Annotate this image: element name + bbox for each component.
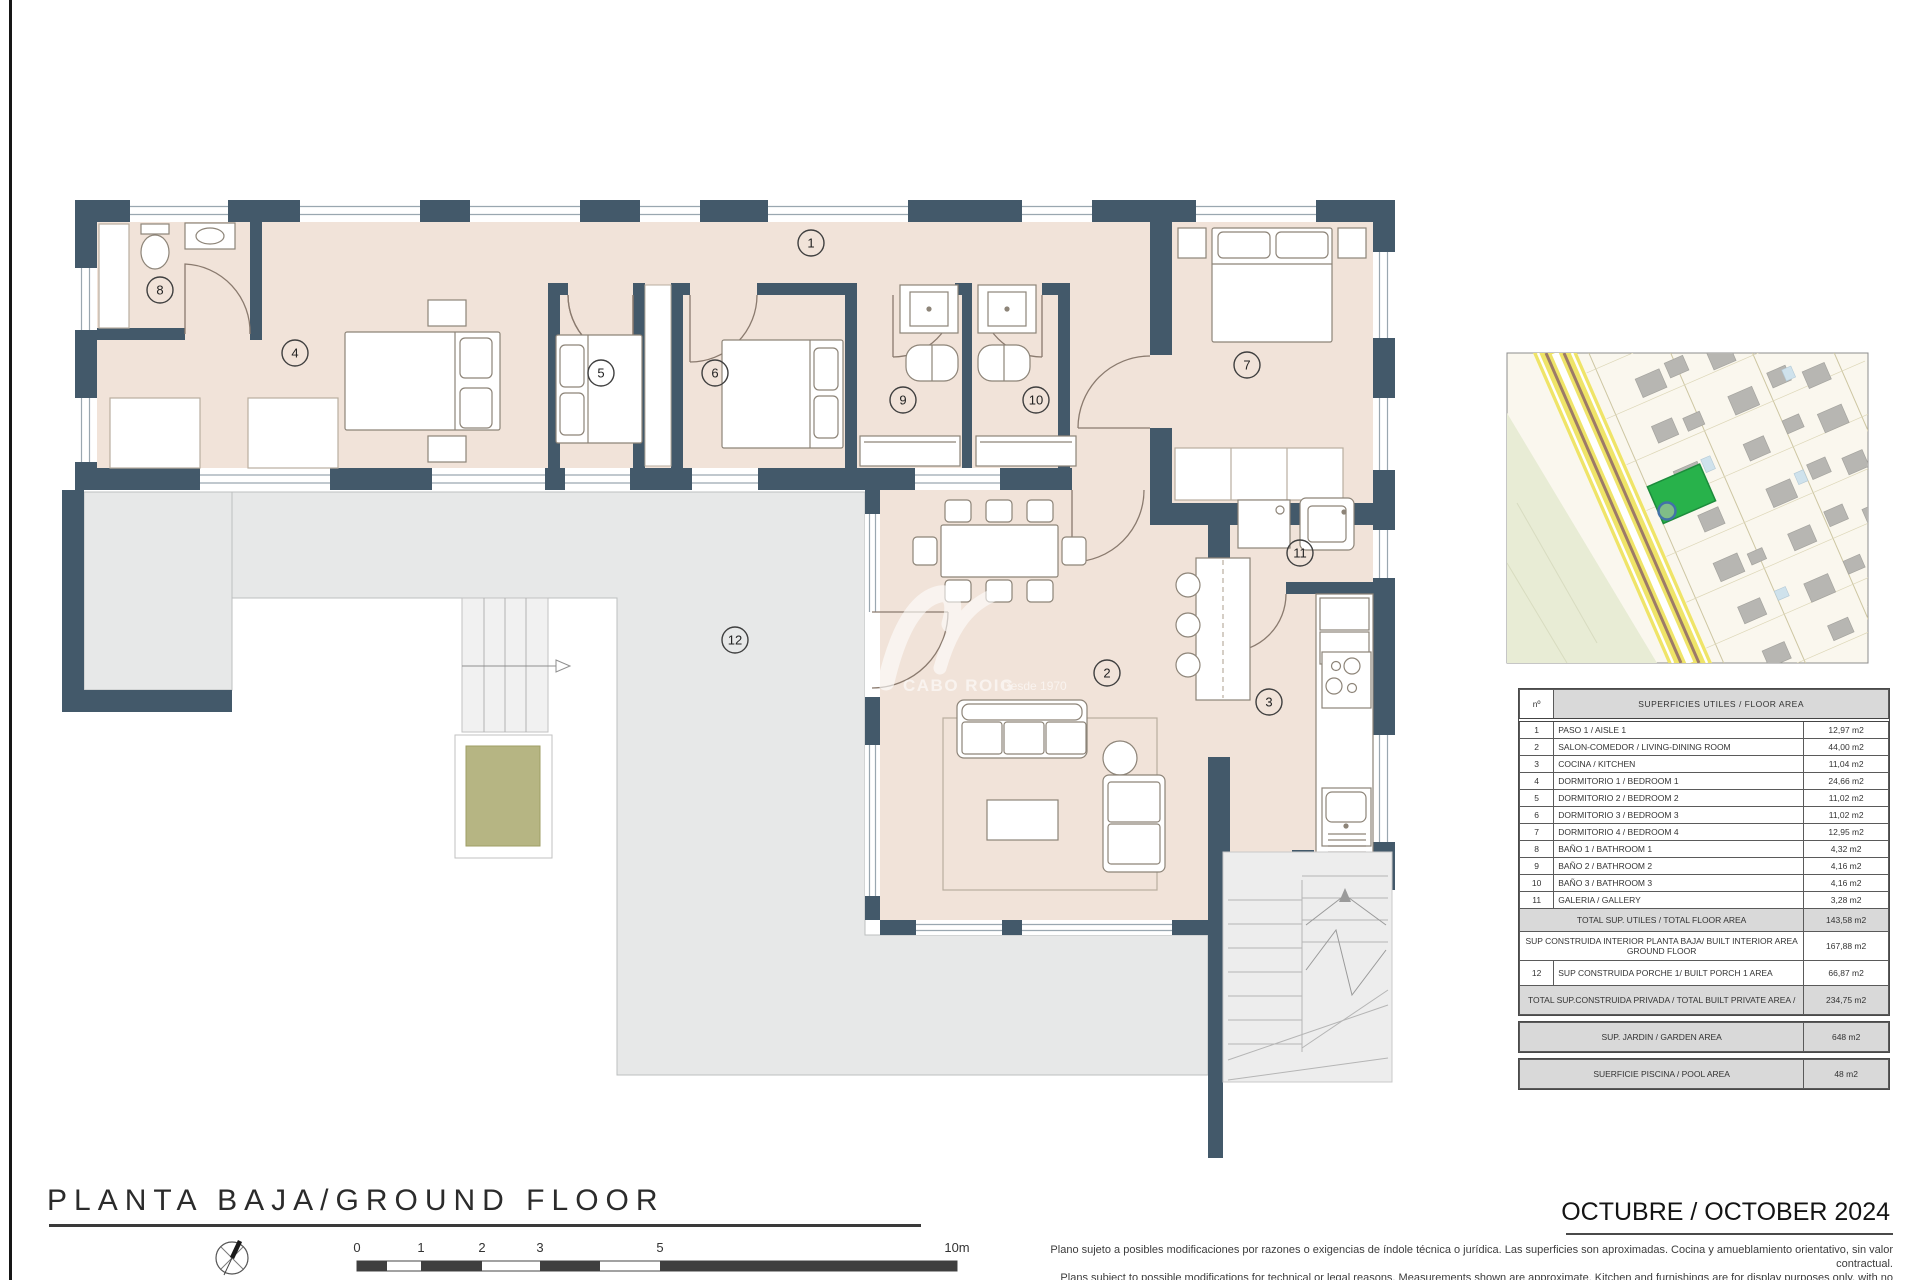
- closet-rooms-5-6: [645, 285, 671, 466]
- watermark-brand: CABO ROIG: [903, 676, 1015, 695]
- pool-area-block: SUERFICIE PISCINA / POOL AREA48 m2: [1518, 1058, 1890, 1090]
- garden-stairs: [462, 598, 570, 732]
- svg-text:1: 1: [807, 236, 814, 251]
- svg-text:3: 3: [1265, 695, 1272, 710]
- date-rule: [1566, 1233, 1893, 1235]
- pool-area-row: SUERFICIE PISCINA / POOL AREA48 m2: [1520, 1060, 1889, 1089]
- svg-text:11: 11: [1293, 546, 1307, 561]
- compass-icon: [216, 1241, 248, 1275]
- table-row: 1PASO 1 / AISLE 112,97 m2: [1520, 720, 1889, 739]
- watermark-tagline: Desde 1970: [1002, 679, 1067, 693]
- page-title: PLANTA BAJA/GROUND FLOOR: [47, 1184, 665, 1218]
- svg-text:2: 2: [1103, 666, 1110, 681]
- table-row: 3COCINA / KITCHEN11,04 m2: [1520, 756, 1889, 773]
- scale-labels: 0 1 2 3 5 10m: [353, 1240, 969, 1255]
- svg-text:0: 0: [353, 1240, 360, 1255]
- planter: [455, 735, 552, 858]
- disclaimer-line-es: Plano sujeto a posibles modificaciones p…: [1033, 1243, 1893, 1271]
- porch-area-row: 12SUP CONSTRUIDA PORCHE 1/ BUILT PORCH 1…: [1520, 961, 1889, 986]
- svg-text:9: 9: [899, 393, 906, 408]
- svg-text:6: 6: [711, 366, 718, 381]
- scale-bar: 0 1 2 3 5 10m: [353, 1240, 969, 1271]
- svg-text:12: 12: [728, 633, 742, 648]
- areas-header-title: SUPERFICIES UTILES / FLOOR AREA: [1554, 690, 1889, 721]
- table-row: 9BAÑO 2 / BATHROOM 24,16 m2: [1520, 858, 1889, 875]
- location-map-thumbnail: [1507, 223, 1920, 749]
- floor-plan-sheet: CABO ROIG Desde 1970 1 2 3 4 5 6 7 8 9 1…: [0, 0, 1920, 1280]
- svg-text:7: 7: [1243, 358, 1250, 373]
- areas-header-row: nº SUPERFICIES UTILES / FLOOR AREA: [1520, 690, 1889, 721]
- areas-table-main-block: nº SUPERFICIES UTILES / FLOOR AREA 1PASO…: [1518, 688, 1890, 1016]
- table-row: 4DORMITORIO 1 / BEDROOM 124,66 m2: [1520, 773, 1889, 790]
- svg-text:5: 5: [656, 1240, 663, 1255]
- areas-table: nº SUPERFICIES UTILES / FLOOR AREA 1PASO…: [1518, 688, 1890, 1095]
- svg-text:1: 1: [417, 1240, 424, 1255]
- table-row: 2SALON-COMEDOR / LIVING-DINING ROOM44,00…: [1520, 739, 1889, 756]
- svg-text:3: 3: [536, 1240, 543, 1255]
- map-location-marker: [1659, 503, 1676, 520]
- svg-text:10: 10: [1029, 393, 1043, 408]
- svg-text:10m: 10m: [944, 1240, 969, 1255]
- table-row: 6DORMITORIO 3 / BEDROOM 311,02 m2: [1520, 807, 1889, 824]
- svg-text:8: 8: [156, 283, 163, 298]
- table-row: 10BAÑO 3 / BATHROOM 34,16 m2: [1520, 875, 1889, 892]
- plan-date: OCTUBRE / OCTOBER 2024: [1490, 1198, 1890, 1227]
- svg-text:2: 2: [478, 1240, 485, 1255]
- table-row: 5DORMITORIO 2 / BEDROOM 211,02 m2: [1520, 790, 1889, 807]
- table-row: 8BAÑO 1 / BATHROOM 14,32 m2: [1520, 841, 1889, 858]
- disclaimer-line-en: Plans subject to possible modifications …: [1033, 1271, 1893, 1280]
- garden-area-row: SUP. JARDIN / GARDEN AREA648 m2: [1520, 1023, 1889, 1052]
- built-interior-row: SUP CONSTRUIDA INTERIOR PLANTA BAJA/ BUI…: [1520, 932, 1889, 961]
- table-row: 7DORMITORIO 4 / BEDROOM 412,95 m2: [1520, 824, 1889, 841]
- svg-text:4: 4: [291, 346, 298, 361]
- areas-header-num: nº: [1520, 690, 1554, 721]
- exterior-stairs: [1223, 852, 1392, 1082]
- disclaimer: Plano sujeto a posibles modificaciones p…: [1033, 1243, 1893, 1280]
- table-row: 11GALERIA / GALLERY3,28 m2: [1520, 892, 1889, 909]
- garden-area-block: SUP. JARDIN / GARDEN AREA648 m2: [1518, 1021, 1890, 1053]
- total-private-row: TOTAL SUP.CONSTRUIDA PRIVADA / TOTAL BUI…: [1520, 986, 1889, 1015]
- furniture-bedroom-3: [722, 340, 843, 448]
- total-floor-area-row: TOTAL SUP. UTILES / TOTAL FLOOR AREA143,…: [1520, 909, 1889, 932]
- furniture-bedroom-2: [556, 335, 642, 443]
- title-rule: [49, 1224, 921, 1227]
- svg-text:5: 5: [597, 366, 604, 381]
